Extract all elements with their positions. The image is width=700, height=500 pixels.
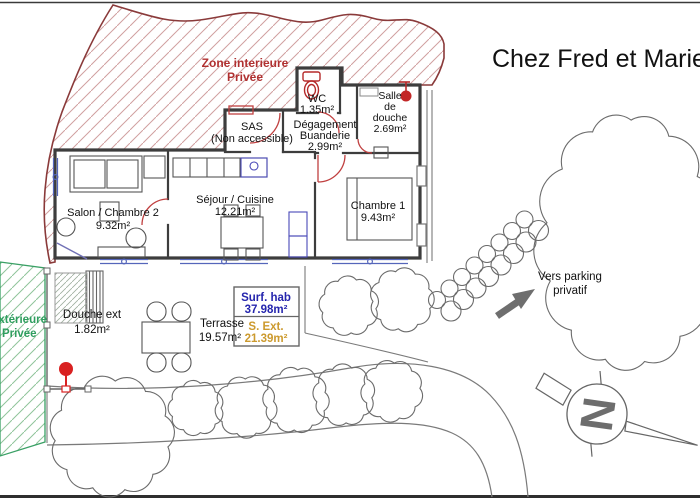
- page-title: Chez Fred et Marie: [492, 45, 700, 73]
- shrub: [516, 232, 536, 252]
- parking-label-1: Vers parking: [538, 271, 602, 283]
- tree: [371, 268, 435, 332]
- salon-label: Salon / Chambre 2: [67, 207, 159, 219]
- zone-interieure-label-2: Privée: [227, 70, 263, 84]
- shrub: [491, 255, 511, 275]
- salle-douche-area: 2.69m²: [374, 123, 407, 135]
- big-tree: [50, 376, 174, 497]
- north-compass: N: [528, 363, 700, 472]
- summary-hab-value: 37.98m²: [245, 304, 288, 316]
- big-tree: [534, 115, 700, 370]
- terrasse-area: 19.57m²: [199, 332, 241, 344]
- douche-ext-area: 1.82m²: [74, 324, 110, 336]
- zone-exterieure-label-1: extérieure: [0, 314, 47, 326]
- hedge-tree: [313, 364, 375, 425]
- degagement-area: 2.99m²: [308, 141, 343, 153]
- shrub: [454, 290, 474, 310]
- sas-label: SAS: [241, 121, 263, 133]
- sejour-label: Séjour / Cuisine: [196, 194, 274, 206]
- floor-plan-svg: Surf. hab 37.98m² S. Ext. 21.39m² N Chez…: [0, 0, 700, 500]
- hedge-tree: [168, 380, 223, 435]
- summary-box: Surf. hab 37.98m² S. Ext. 21.39m²: [234, 287, 299, 346]
- zone-interieure-label-1: Zone interieure: [202, 56, 289, 70]
- salon-area: 9.32m²: [96, 220, 131, 232]
- shrub: [466, 278, 486, 298]
- douche-ext-label: Douche ext: [63, 309, 122, 321]
- floor-plan: Surf. hab 37.98m² S. Ext. 21.39m² N Chez…: [0, 0, 700, 500]
- shrub: [441, 301, 461, 321]
- shrub: [504, 244, 524, 264]
- chambre1-label: Chambre 1: [351, 200, 405, 212]
- parking-arrow-icon: [497, 289, 535, 316]
- summary-ext-value: 21.39m²: [245, 333, 288, 345]
- summary-ext-label: S. Ext.: [248, 321, 283, 333]
- sas-note: (Non accessible): [211, 133, 293, 145]
- terrace-table: [142, 302, 191, 372]
- chambre1-area: 9.43m²: [361, 212, 396, 224]
- wc-area: 1.35m²: [300, 104, 335, 116]
- zone-exterieure-hatch: [0, 262, 45, 456]
- driveway-path: [47, 363, 528, 497]
- tree: [319, 276, 378, 335]
- summary-hab-label: Surf. hab: [241, 292, 291, 304]
- zone-exterieure-label-2: Privée: [2, 328, 37, 340]
- sejour-area: 12.21m²: [215, 206, 256, 218]
- terrasse-label: Terrasse: [200, 318, 244, 330]
- shrub: [479, 267, 499, 287]
- parking-label-2: privatif: [553, 285, 588, 297]
- hedge-tree: [361, 361, 423, 423]
